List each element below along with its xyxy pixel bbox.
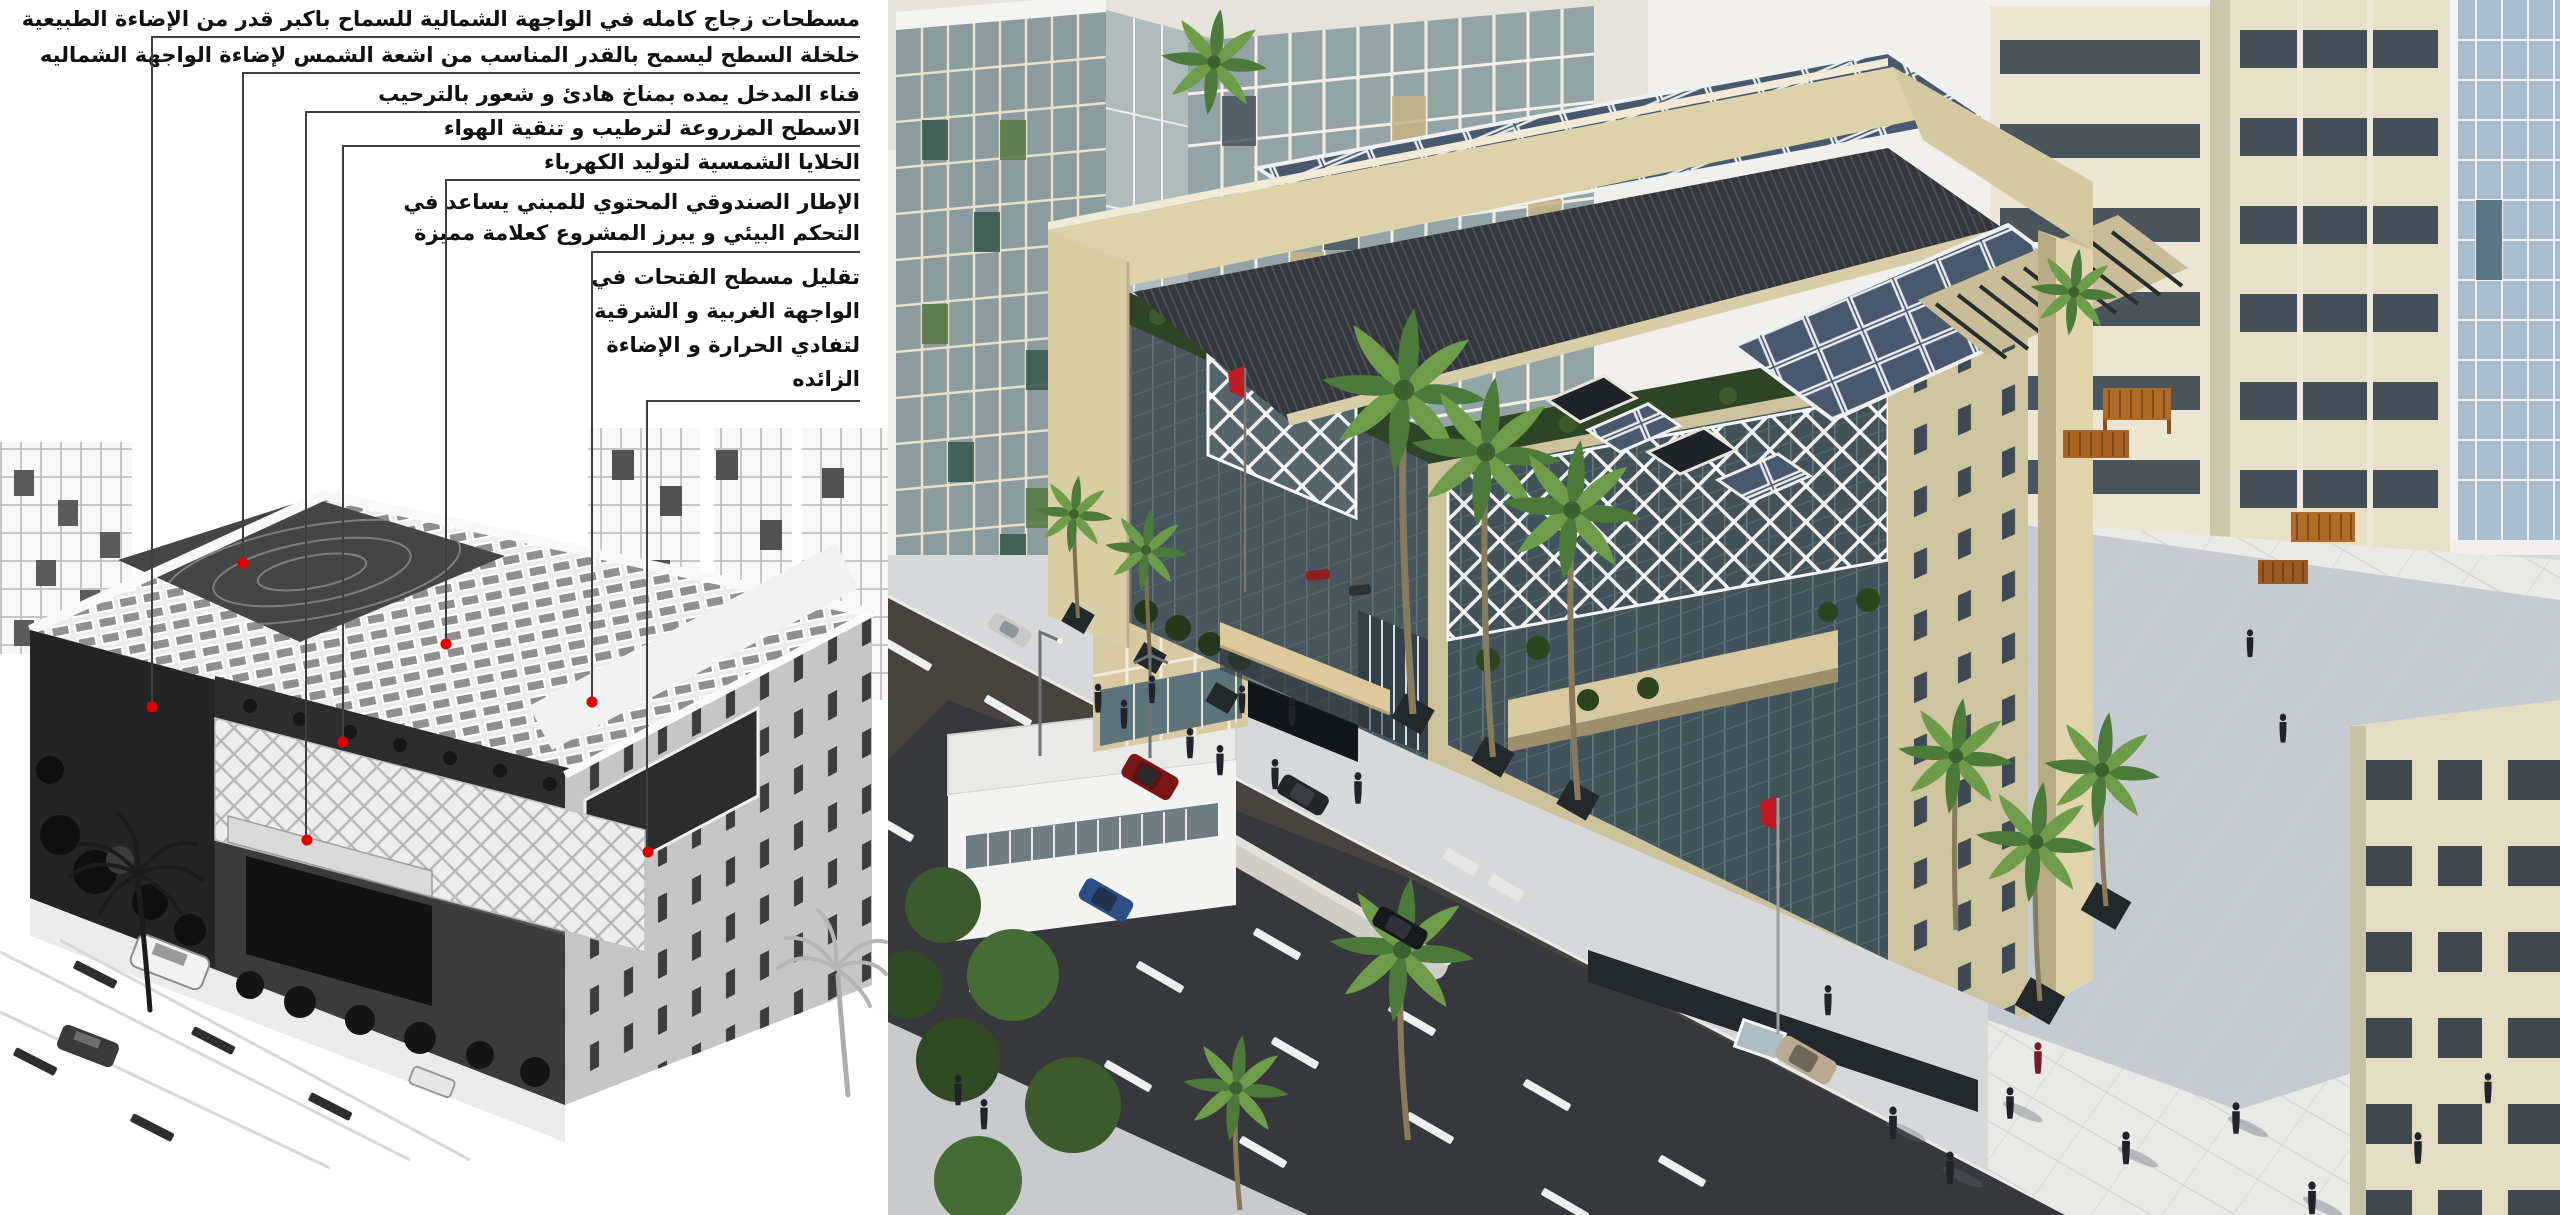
concept-sketch-panel: مسطحات زجاج كامله في الواجهة الشمالية لل… [0, 0, 888, 1215]
color-rendering [888, 0, 2560, 1215]
sketch-car [55, 1023, 120, 1069]
annotation-box-frame: الإطار الصندوقي المحتوي للمبني يساعد في … [404, 187, 861, 249]
concept-sketch [0, 0, 888, 1215]
annotation-entrance-court: فناء المدخل يمده بمناخ هادئ و شعور بالتر… [378, 79, 860, 110]
background-tower-glass [2450, 0, 2560, 540]
rendering-panel [888, 0, 2560, 1215]
annotation-planted-roofs: الاسطح المزروعة لترطيب و تنقية الهواء [444, 113, 860, 144]
bottomright-building [2350, 700, 2560, 1215]
annotation-reduced-openings: تقليل مسطح الفتحات في الواجهة الغربية و … [591, 260, 860, 396]
annotation-solar-cells: الخلايا الشمسية لتوليد الكهرباء [544, 147, 860, 178]
presentation-board: مسطحات زجاج كامله في الواجهة الشمالية لل… [0, 0, 2560, 1215]
annotation-north-glass: مسطحات زجاج كامله في الواجهة الشمالية لل… [22, 4, 860, 35]
annotation-roof-perforation: خلخلة السطح ليسمح بالقدر المناسب من اشعة… [40, 40, 860, 71]
